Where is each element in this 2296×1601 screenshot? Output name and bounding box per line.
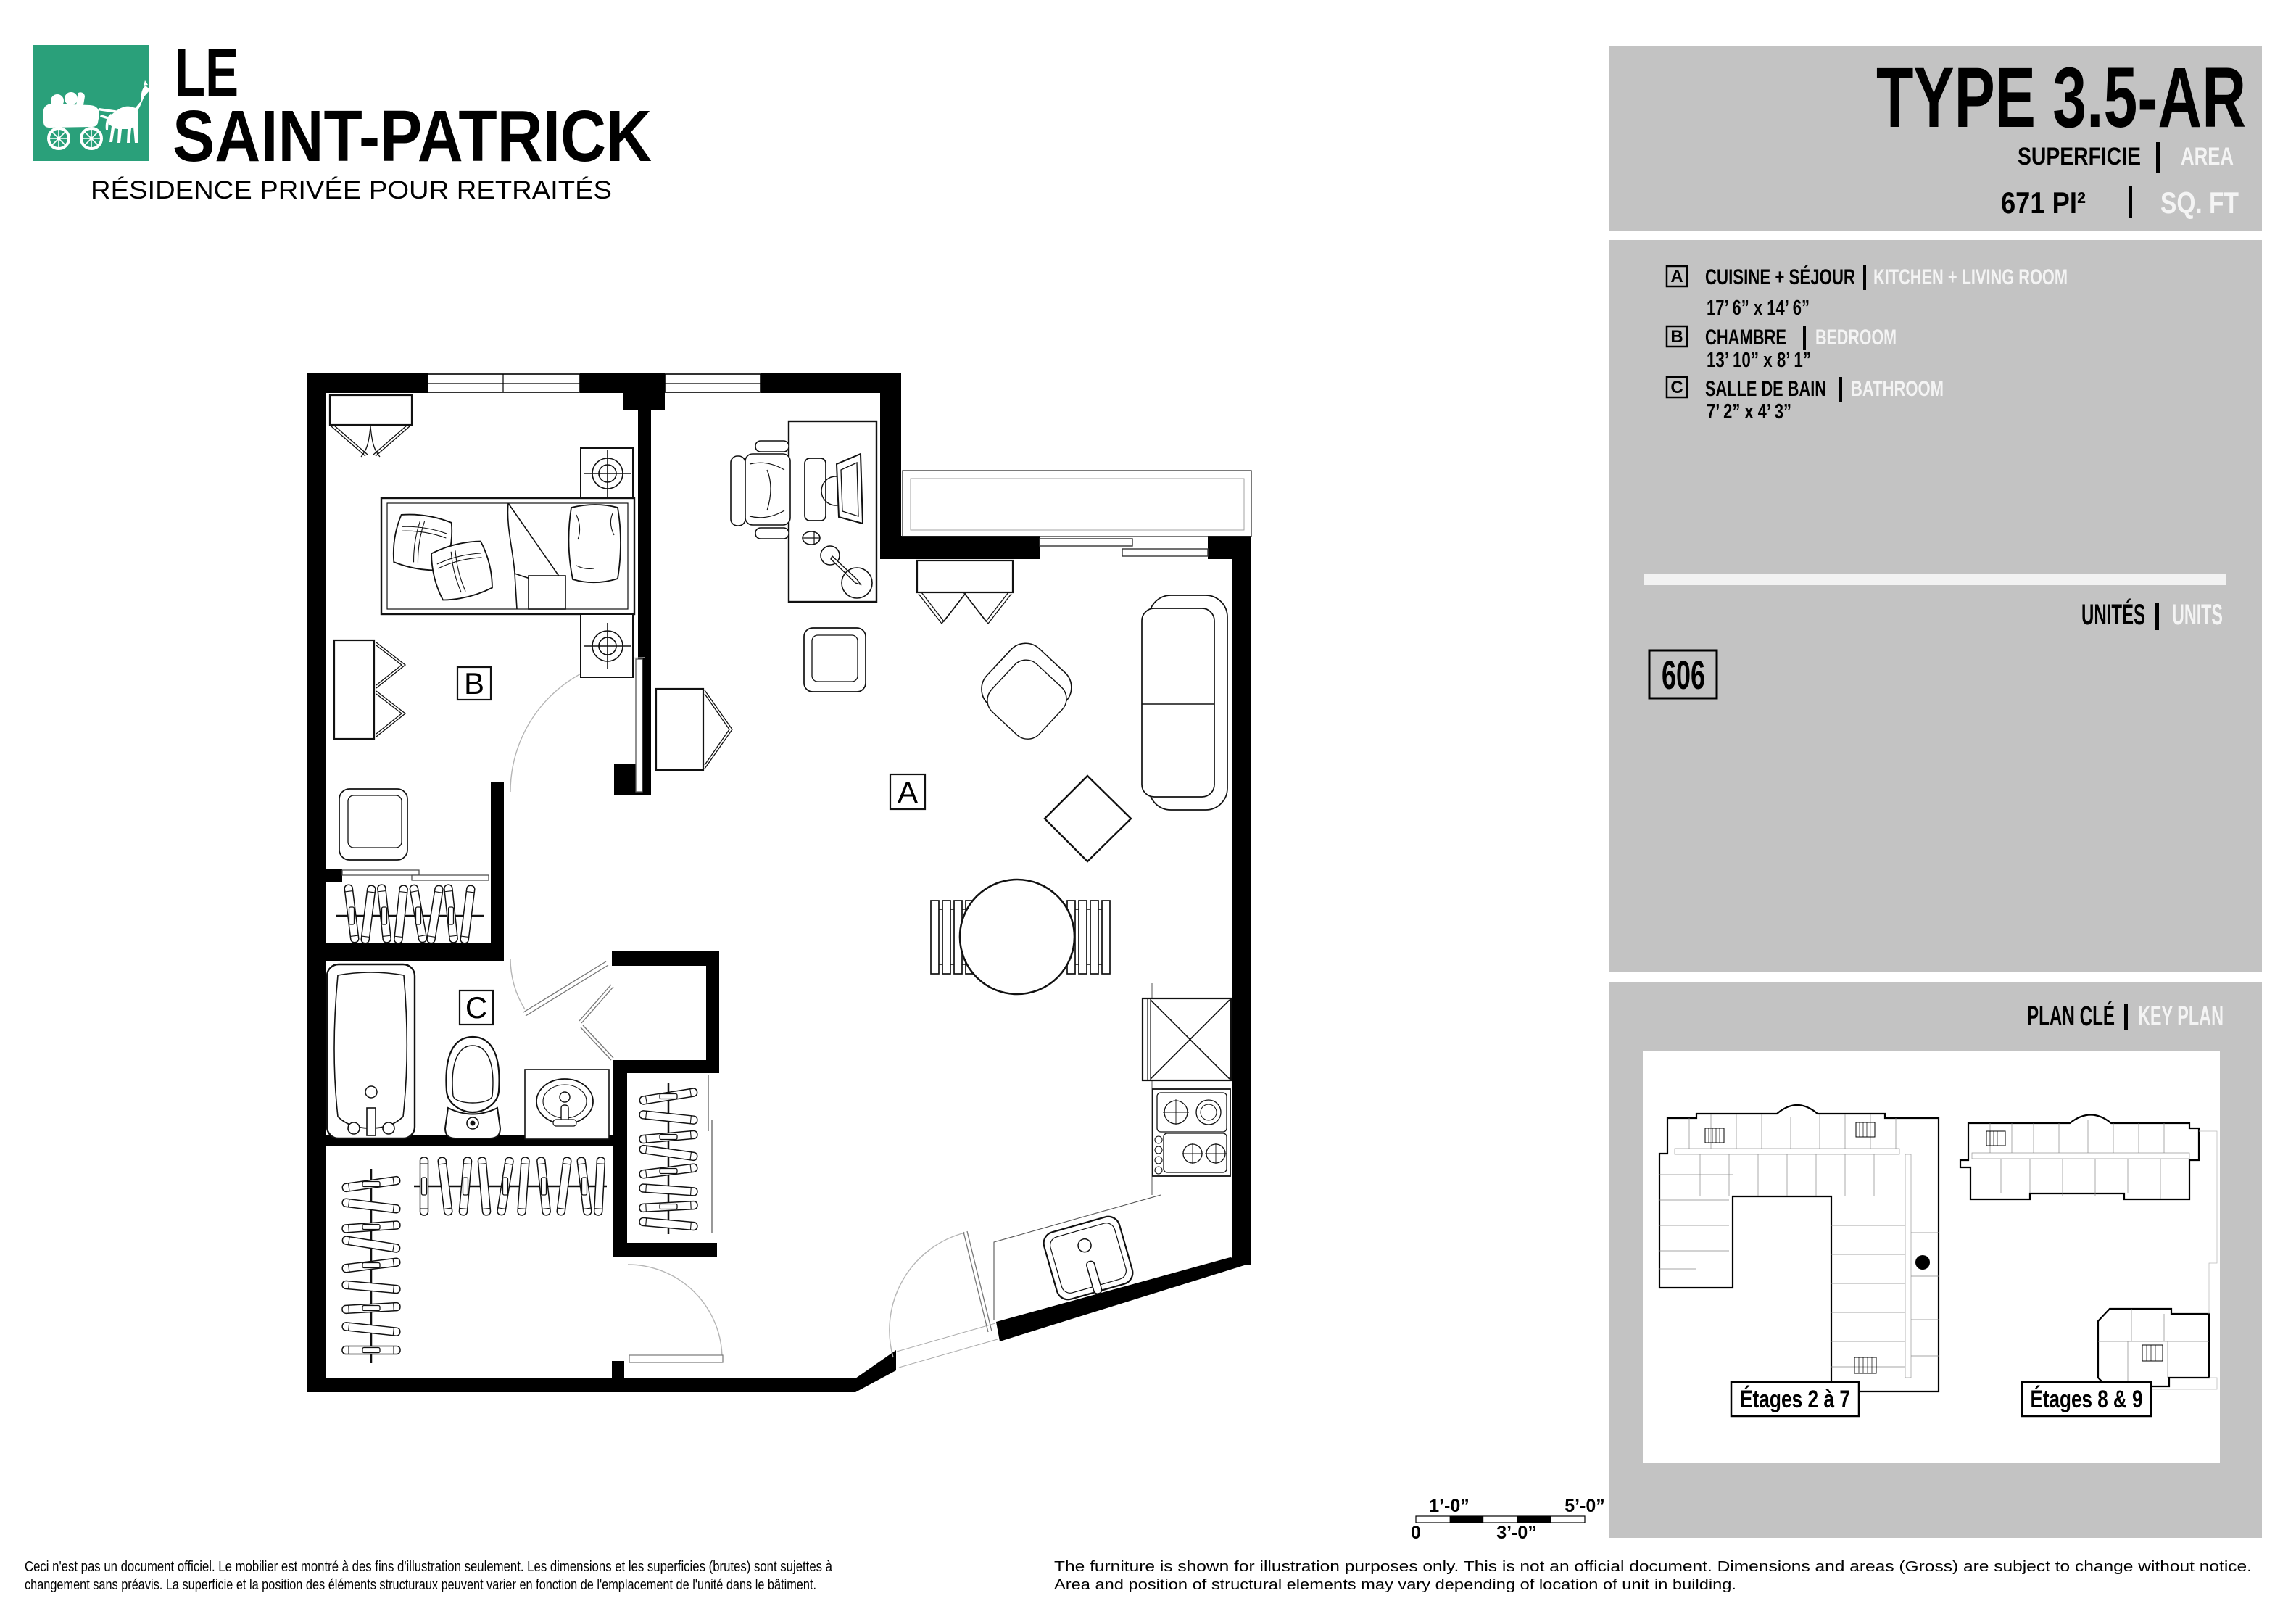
- svg-text:5’-0”: 5’-0”: [1564, 1496, 1605, 1516]
- svg-text:The furniture is shown for ill: The furniture is shown for illustration …: [1054, 1558, 2252, 1575]
- svg-text:AREA: AREA: [2181, 143, 2234, 170]
- svg-text:Étages 8 & 9: Étages 8 & 9: [2031, 1386, 2143, 1413]
- svg-text:SUPERFICIE: SUPERFICIE: [2018, 143, 2141, 170]
- svg-text:UNITS: UNITS: [2172, 599, 2223, 631]
- svg-text:Étages 2 à 7: Étages 2 à 7: [1740, 1386, 1850, 1413]
- svg-text:671 PI²: 671 PI²: [2001, 186, 2086, 220]
- svg-text:13’ 10” x 8’ 1”: 13’ 10” x 8’ 1”: [1707, 349, 1811, 372]
- svg-text:1’-0”: 1’-0”: [1429, 1496, 1470, 1516]
- svg-text:UNITÉS: UNITÉS: [2081, 598, 2145, 631]
- svg-text:3’-0”: 3’-0”: [1496, 1523, 1537, 1543]
- svg-text:17’ 6” x 14’ 6”: 17’ 6” x 14’ 6”: [1707, 297, 1810, 320]
- svg-text:PLAN CLÉ: PLAN CLÉ: [2027, 1000, 2115, 1032]
- svg-text:TYPE 3.5-AR: TYPE 3.5-AR: [1876, 50, 2246, 146]
- svg-text:C: C: [465, 990, 487, 1025]
- svg-text:C: C: [1670, 378, 1683, 397]
- svg-text:A: A: [898, 775, 918, 809]
- svg-text:SAINT-PATRICK: SAINT-PATRICK: [173, 96, 652, 177]
- svg-text:changement sans préavis. La su: changement sans préavis. La superficie e…: [25, 1576, 816, 1593]
- svg-text:BATHROOM: BATHROOM: [1851, 377, 1944, 401]
- svg-text:Area and position of structura: Area and position of structural elements…: [1054, 1576, 1736, 1593]
- svg-text:CHAMBRE: CHAMBRE: [1705, 326, 1786, 349]
- svg-text:KITCHEN + LIVING ROOM: KITCHEN + LIVING ROOM: [1873, 265, 2068, 289]
- svg-text:SQ. FT: SQ. FT: [2160, 186, 2239, 220]
- svg-text:RÉSIDENCE PRIVÉE POUR RETRAITÉ: RÉSIDENCE PRIVÉE POUR RETRAITÉS: [91, 176, 612, 204]
- svg-text:SALLE DE BAIN: SALLE DE BAIN: [1705, 377, 1826, 401]
- svg-text:0: 0: [1411, 1523, 1421, 1543]
- svg-text:B: B: [464, 666, 484, 700]
- svg-text:B: B: [1670, 327, 1683, 347]
- svg-text:BEDROOM: BEDROOM: [1815, 326, 1897, 349]
- svg-text:CUISINE + SÉJOUR: CUISINE + SÉJOUR: [1705, 265, 1855, 289]
- svg-text:7’ 2” x 4’ 3”: 7’ 2” x 4’ 3”: [1707, 400, 1791, 423]
- svg-text:KEY PLAN: KEY PLAN: [2138, 1001, 2224, 1032]
- svg-text:606: 606: [1662, 652, 1705, 698]
- svg-text:Ceci n'est pas un document off: Ceci n'est pas un document officiel. Le …: [25, 1558, 832, 1575]
- svg-text:A: A: [1670, 267, 1683, 286]
